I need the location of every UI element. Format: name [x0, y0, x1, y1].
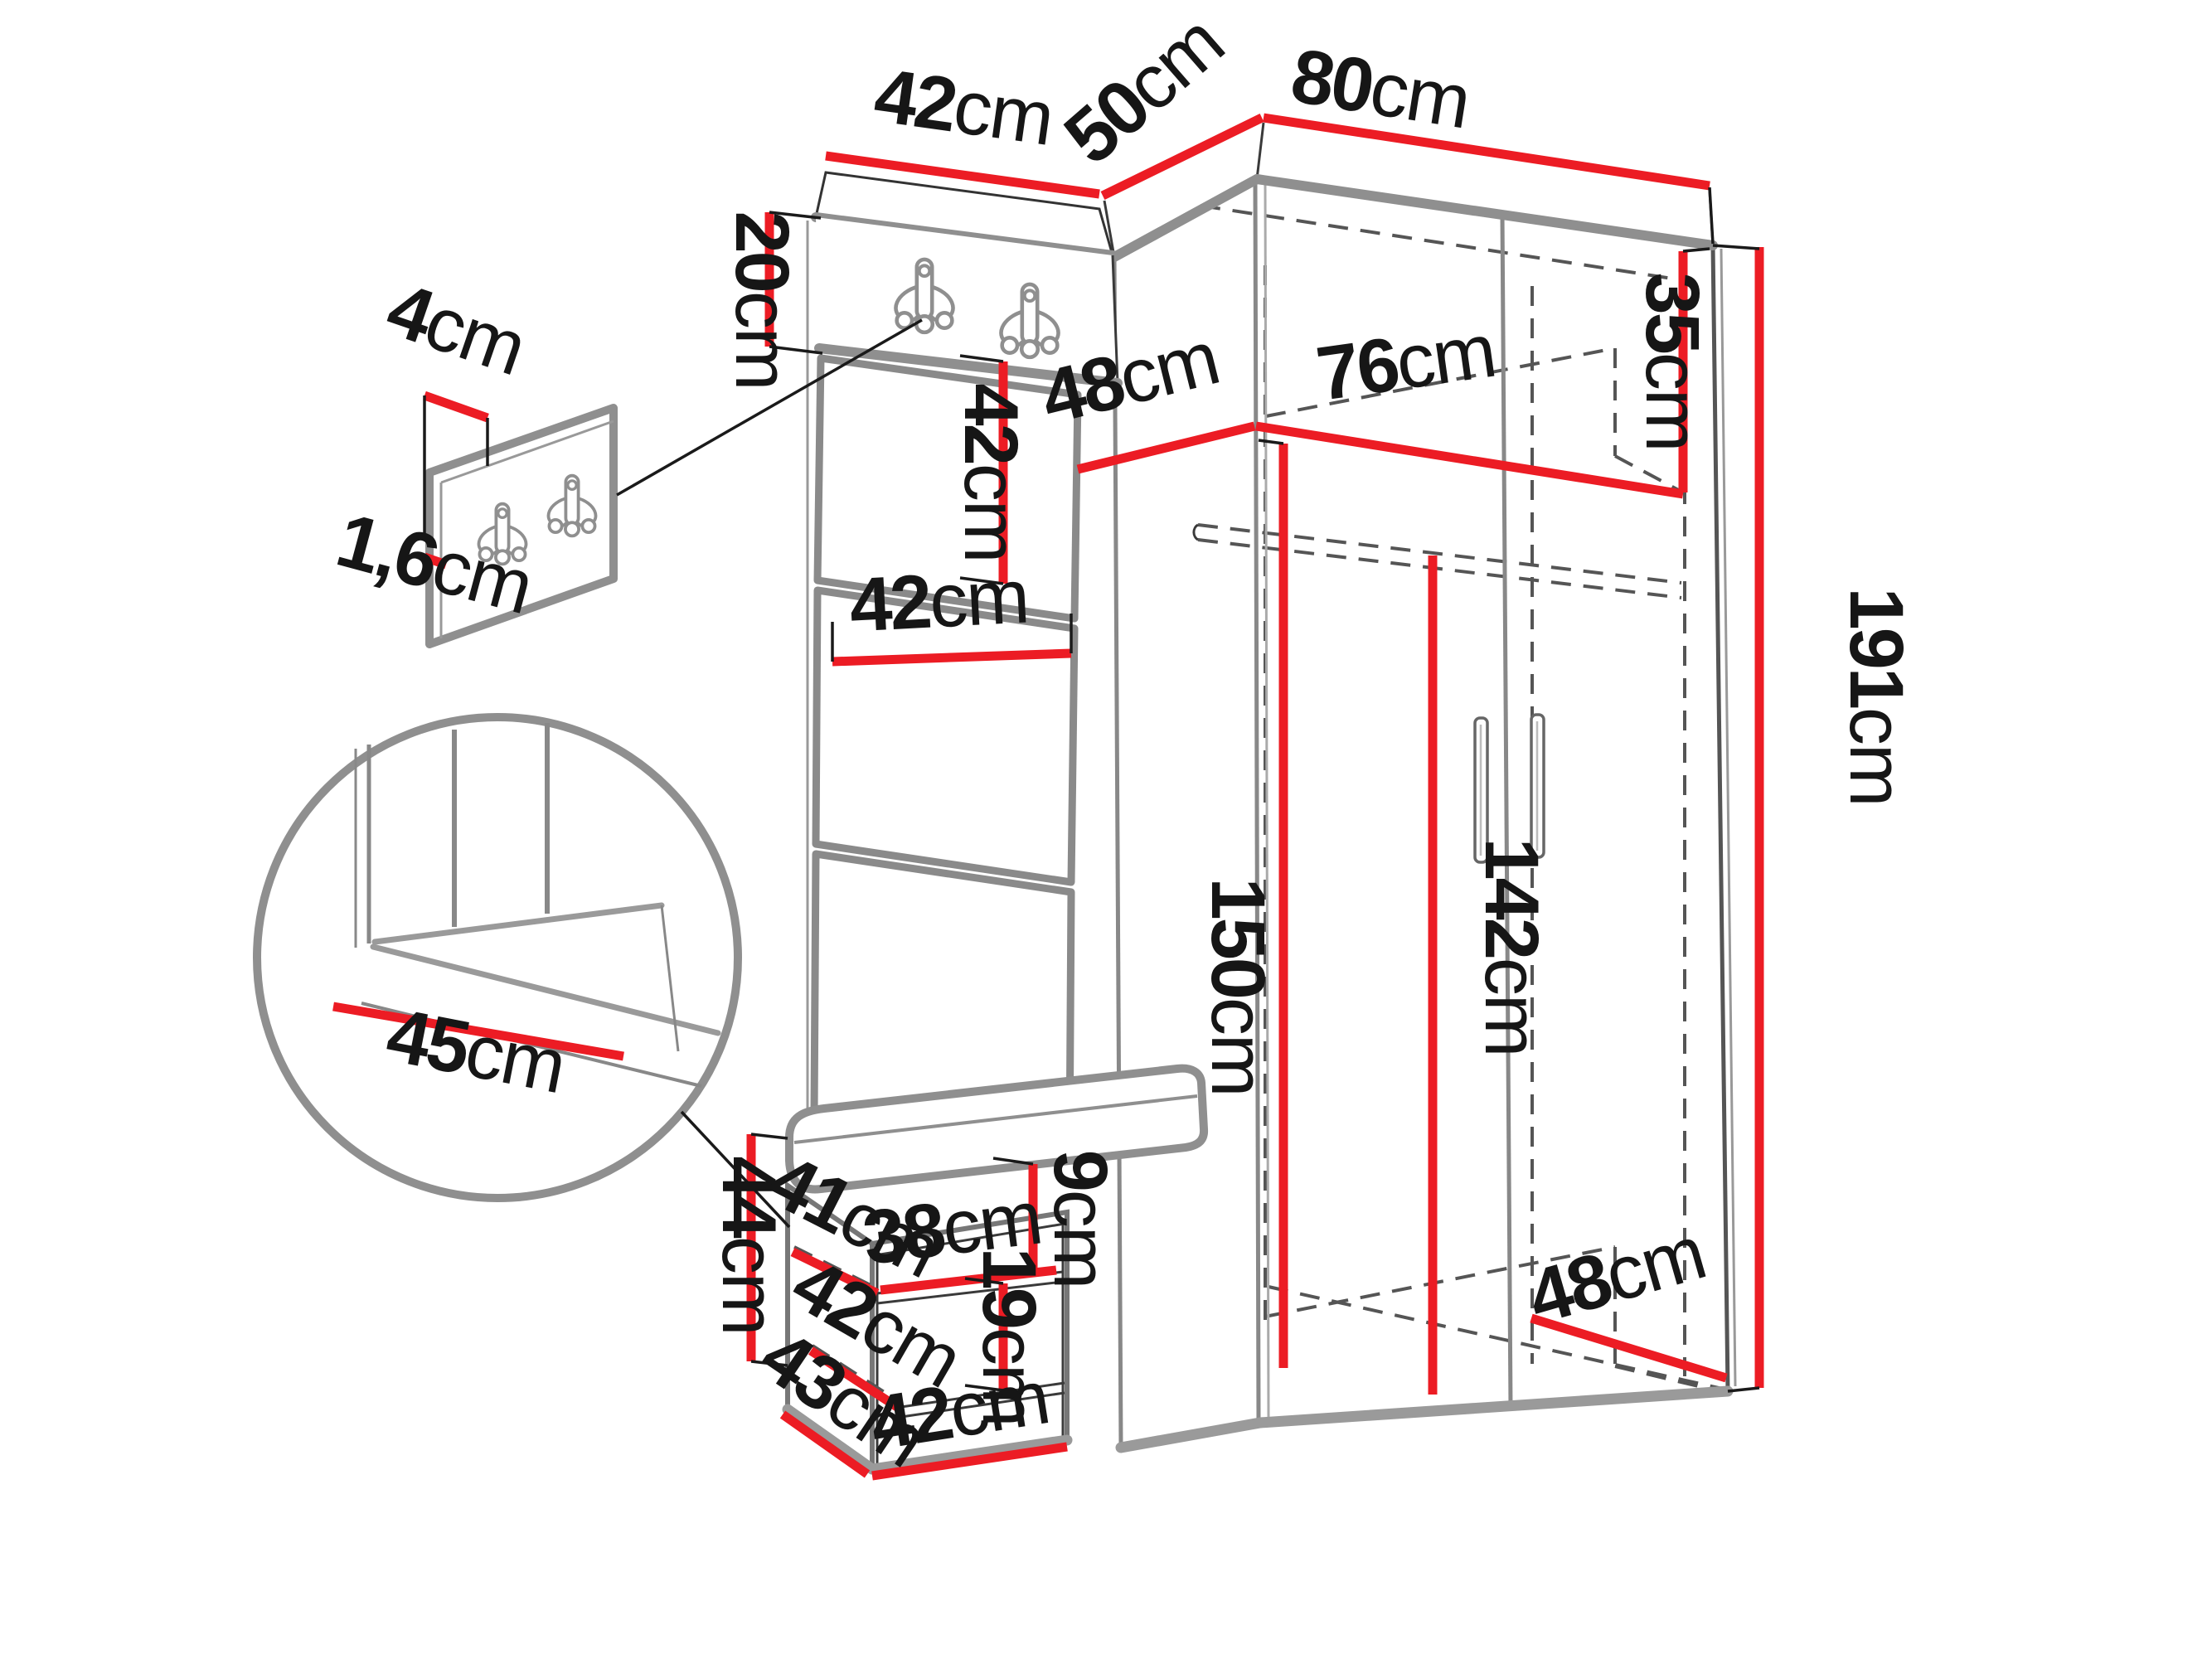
label-padded-square-width: 42cm	[847, 554, 1030, 648]
furniture-dimension-diagram: 42cm 50cm 80cm 20cm 4cm 1,6cm 42cm 42cm …	[0, 0, 2212, 1659]
label-wardrobe-height: 191cm	[1834, 587, 1919, 805]
label-padded-square-height: 42cm	[948, 384, 1033, 562]
label-top-shelf-height: 35cm	[1630, 273, 1715, 451]
label-door-interior-height: 142cm	[1469, 837, 1554, 1055]
diagram-canvas: 42cm 50cm 80cm 20cm 4cm 1,6cm 42cm 42cm …	[0, 0, 2212, 1659]
label-left-interior-height: 150cm	[1196, 877, 1280, 1095]
label-hook-panel-height: 20cm	[720, 211, 804, 390]
door-handle-right	[1531, 715, 1544, 857]
